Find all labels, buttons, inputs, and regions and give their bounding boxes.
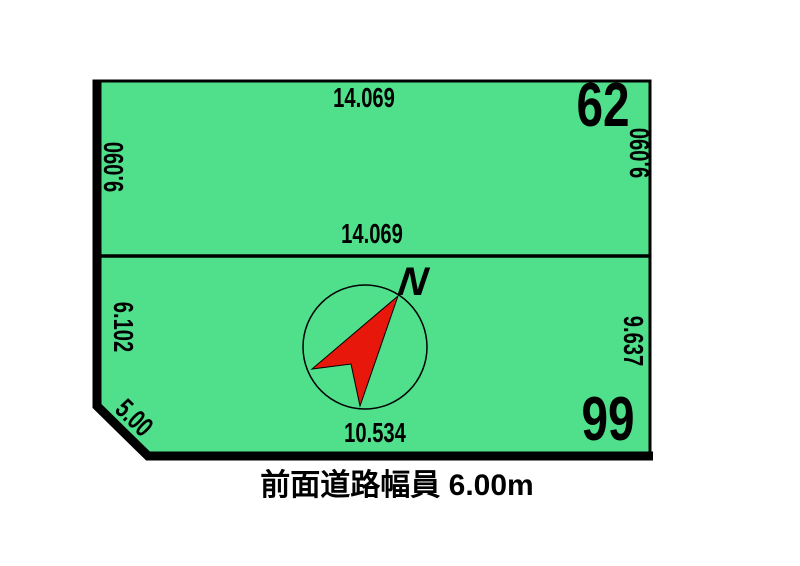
north-label: N xyxy=(396,262,431,302)
lot62-number: 62 xyxy=(576,75,629,137)
lot62-bottom-dimension: 14.069 xyxy=(341,220,403,248)
lot62-left-dimension: 9.090 xyxy=(100,142,128,192)
lot62-right-dimension: 9.090 xyxy=(626,128,654,178)
lot62-top-dimension: 14.069 xyxy=(333,84,395,112)
land-parcel-shape xyxy=(97,81,650,456)
lot99-left-dimension: 6.102 xyxy=(109,302,137,352)
lot99-bottom-dimension: 10.534 xyxy=(344,419,406,447)
lot99-number: 99 xyxy=(581,389,634,451)
land-plot-diagram: 14.069 14.069 9.090 9.090 6.102 9.637 5.… xyxy=(0,0,800,566)
front-road-width-caption: 前面道路幅員 6.00m xyxy=(260,471,533,501)
lot99-right-dimension: 9.637 xyxy=(619,316,647,366)
